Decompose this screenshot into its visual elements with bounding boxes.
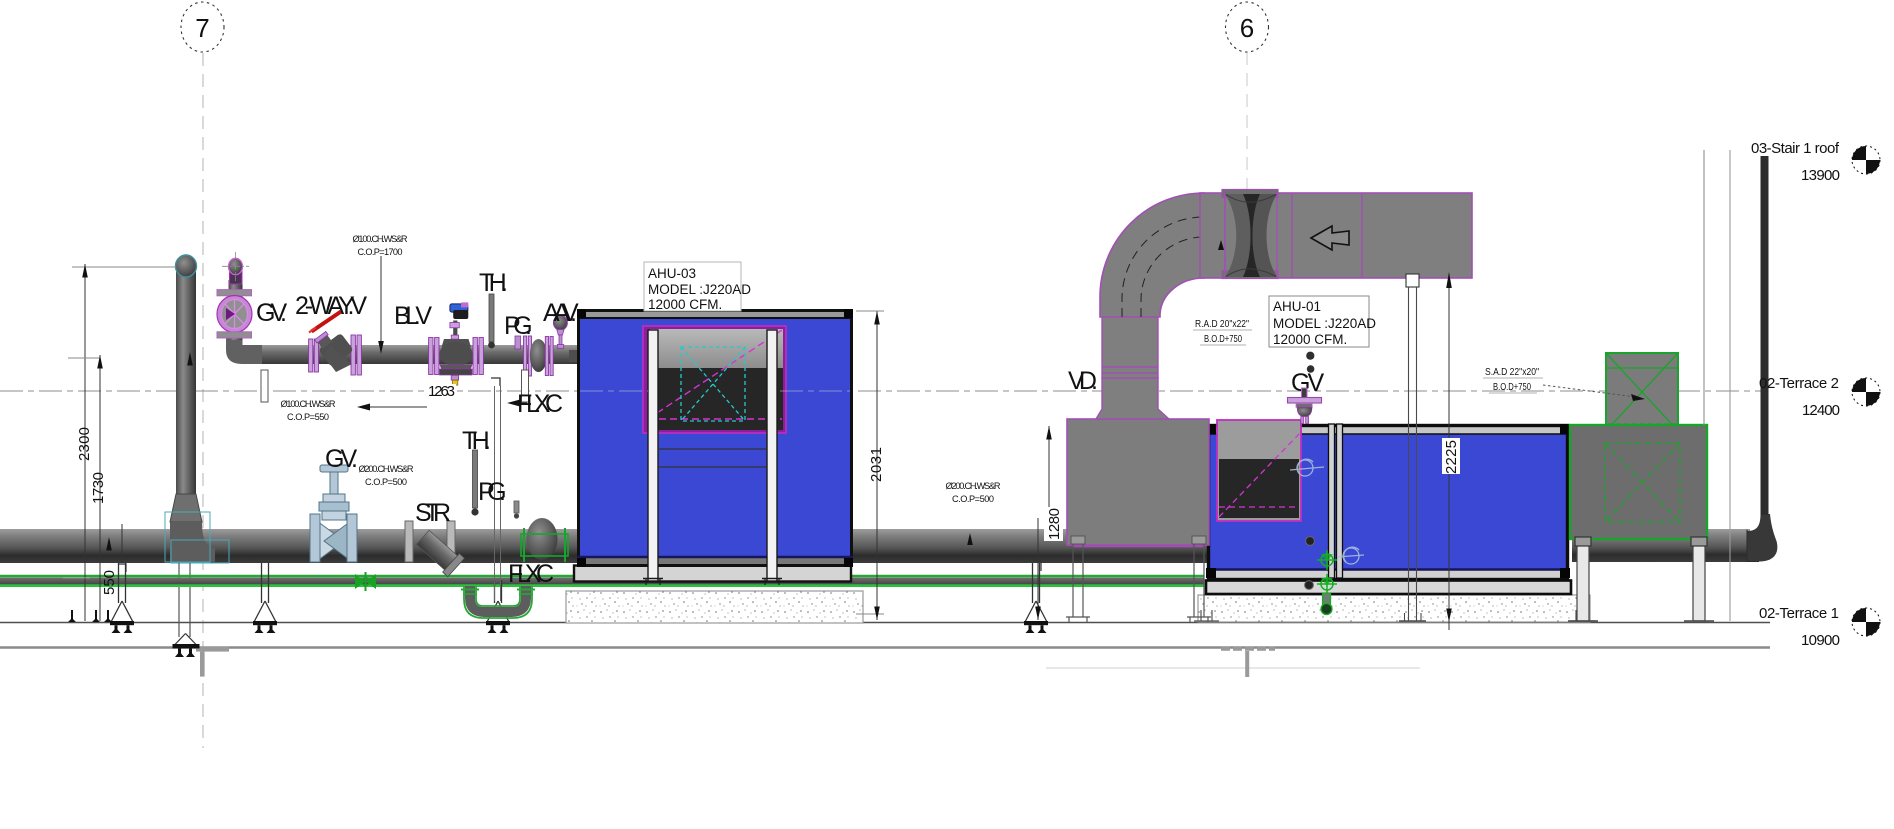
svg-text:AAV.: AAV. <box>543 299 579 327</box>
svg-text:02-Terrace 2: 02-Terrace 2 <box>1759 375 1839 392</box>
svg-text:PG.: PG. <box>504 312 533 340</box>
svg-text:02-Terrace 1: 02-Terrace 1 <box>1759 605 1839 622</box>
svg-text:PG.: PG. <box>478 478 507 506</box>
svg-text:Ø100.CH.WS&R: Ø100.CH.WS&R <box>353 234 408 244</box>
svg-text:Ø200.CH.WS&R: Ø200.CH.WS&R <box>359 464 414 474</box>
svg-text:V: V <box>1308 369 1325 397</box>
svg-text:TH.: TH. <box>479 269 508 297</box>
svg-text:MODEL :J220AD: MODEL :J220AD <box>648 282 751 297</box>
svg-text:10900: 10900 <box>1801 632 1840 649</box>
svg-text:C.O.P=500: C.O.P=500 <box>952 494 994 504</box>
svg-text:GV.: GV. <box>325 445 358 473</box>
svg-text:Ø200.CH.WS&R: Ø200.CH.WS&R <box>946 481 1001 491</box>
svg-text:12000 CFM.: 12000 CFM. <box>1273 332 1347 347</box>
svg-text:2225: 2225 <box>1443 440 1460 474</box>
svg-text:1730: 1730 <box>90 472 107 504</box>
svg-text:13900: 13900 <box>1801 167 1840 184</box>
svg-text:R.A.D 20"x22": R.A.D 20"x22" <box>1195 318 1249 330</box>
svg-text:TH.: TH. <box>462 427 491 455</box>
svg-text:1280: 1280 <box>1046 508 1063 540</box>
svg-text:AHU-03: AHU-03 <box>648 266 696 281</box>
svg-text:2-WAY.V: 2-WAY.V <box>295 292 367 320</box>
svg-text:FLX.C: FLX.C <box>517 390 563 418</box>
svg-text:BL.V: BL.V <box>394 302 432 330</box>
svg-text:S.A.D 22"x20": S.A.D 22"x20" <box>1485 366 1539 378</box>
svg-text:03-Stair 1 roof: 03-Stair 1 roof <box>1751 140 1840 157</box>
svg-text:C.O.P=550: C.O.P=550 <box>287 412 329 422</box>
svg-text:12400: 12400 <box>1802 402 1840 419</box>
svg-text:1263: 1263 <box>428 383 455 400</box>
svg-text:FLX.C: FLX.C <box>508 560 554 588</box>
svg-text:12000 CFM.: 12000 CFM. <box>648 297 722 312</box>
svg-text:B.O.D+750: B.O.D+750 <box>1204 333 1242 345</box>
svg-text:2031: 2031 <box>868 447 885 482</box>
svg-text:C.O.P=1700: C.O.P=1700 <box>358 247 403 257</box>
svg-text:B.O.D+750: B.O.D+750 <box>1493 381 1531 393</box>
svg-text:MODEL :J220AD: MODEL :J220AD <box>1273 316 1376 331</box>
svg-text:2300: 2300 <box>76 427 93 461</box>
svg-text:C.O.P=500: C.O.P=500 <box>365 477 407 487</box>
svg-text:6: 6 <box>1240 13 1254 43</box>
svg-text:7: 7 <box>195 13 209 43</box>
svg-text:GV.: GV. <box>256 299 288 327</box>
svg-text:Ø100.CH.WS&R: Ø100.CH.WS&R <box>281 399 336 409</box>
svg-text:550: 550 <box>101 570 118 595</box>
svg-text:VD.: VD. <box>1068 367 1098 395</box>
svg-text:AHU-01: AHU-01 <box>1273 299 1321 314</box>
svg-text:STR.: STR. <box>415 499 451 527</box>
